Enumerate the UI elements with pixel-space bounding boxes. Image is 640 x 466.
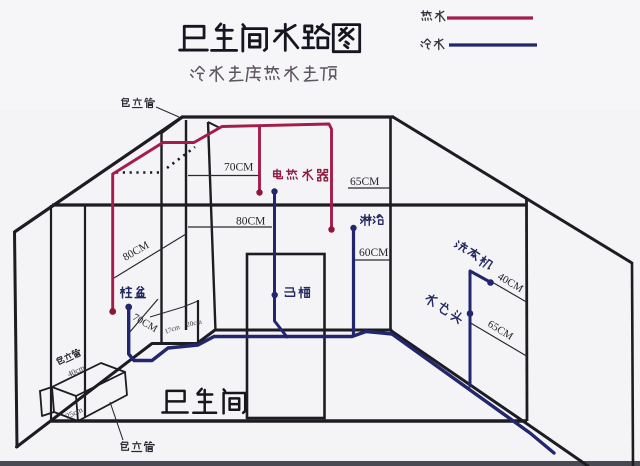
- svg-text:65CM: 65CM: [350, 176, 379, 188]
- svg-text:60CM: 60CM: [359, 247, 388, 259]
- svg-text:80CM: 80CM: [236, 216, 265, 228]
- svg-text:70CM: 70CM: [224, 162, 253, 174]
